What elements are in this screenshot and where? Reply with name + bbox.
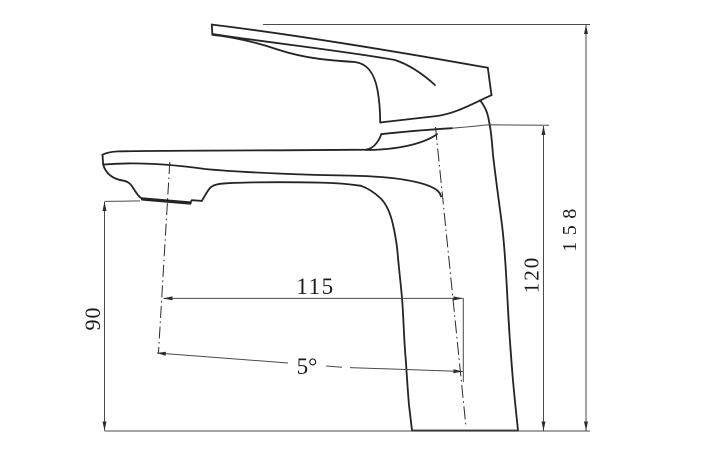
svg-text:158: 158 (559, 202, 581, 252)
svg-text:115: 115 (296, 274, 334, 299)
svg-text:90: 90 (80, 307, 105, 331)
svg-text:5°: 5° (297, 354, 318, 379)
svg-text:120: 120 (519, 256, 543, 294)
